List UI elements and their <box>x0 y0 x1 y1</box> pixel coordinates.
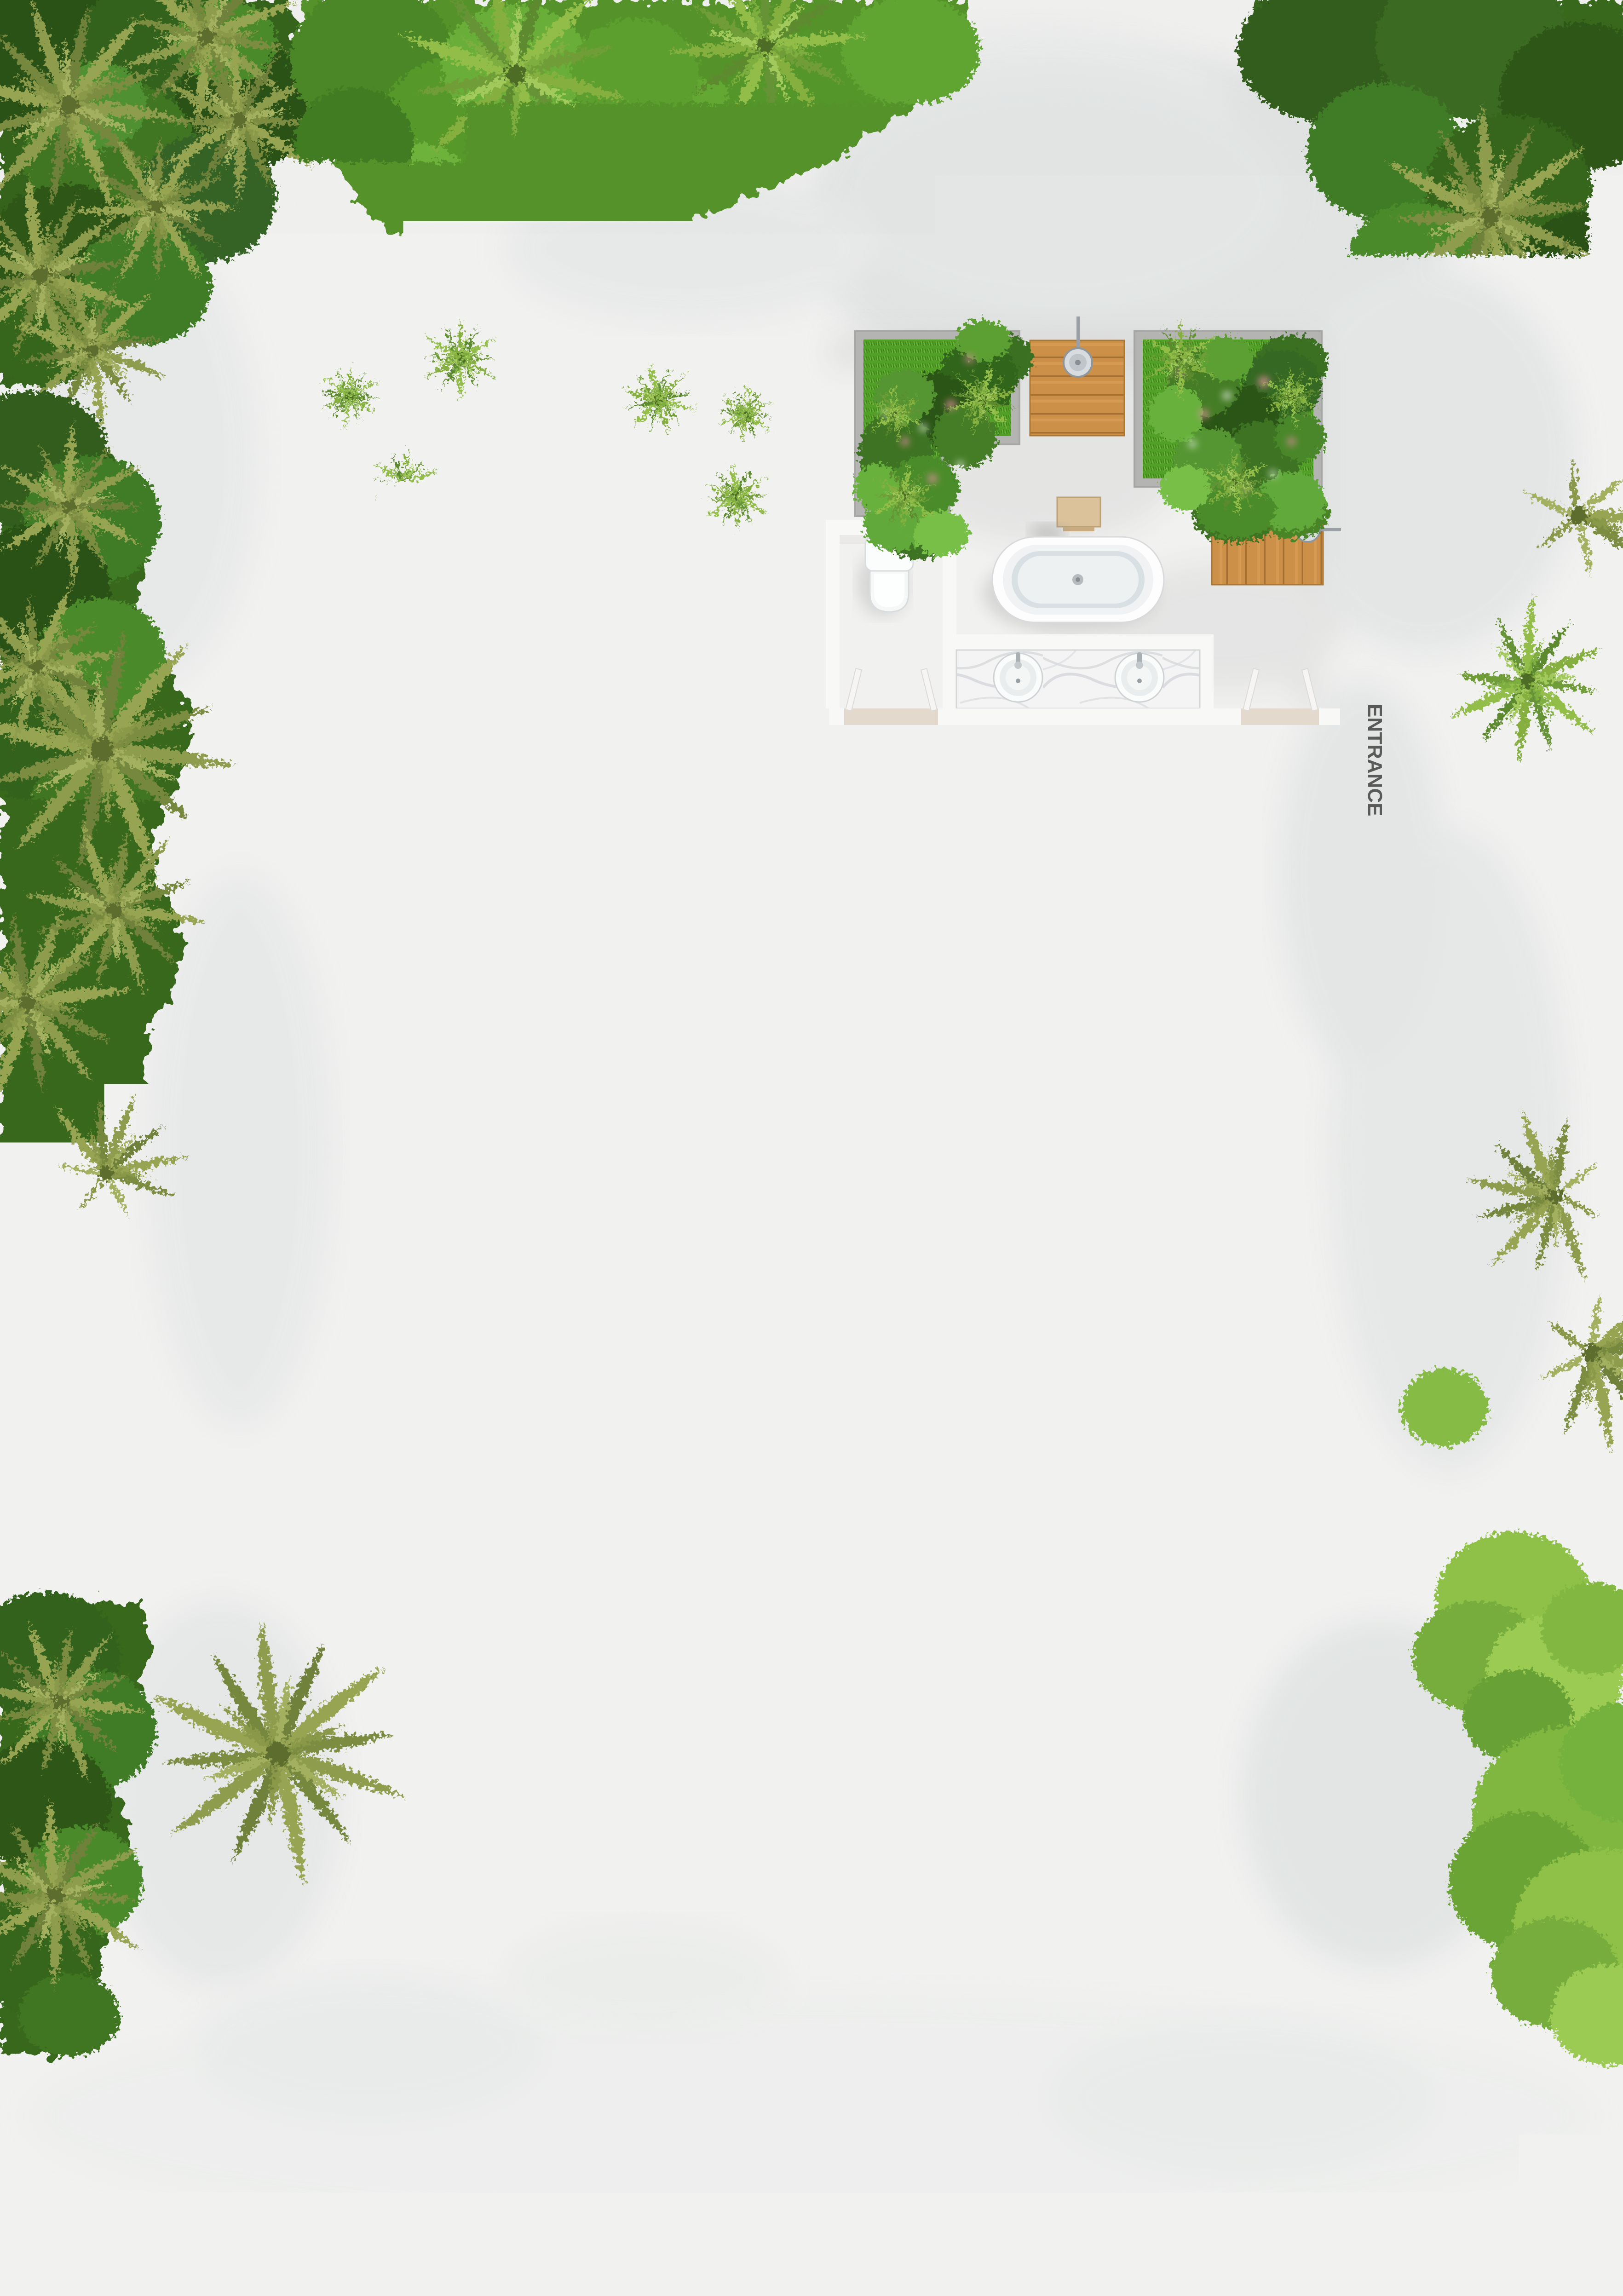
svg-text:ENTRANCE: ENTRANCE <box>262 704 285 816</box>
svg-text:ENTRANCE: ENTRANCE <box>1364 704 1386 816</box>
